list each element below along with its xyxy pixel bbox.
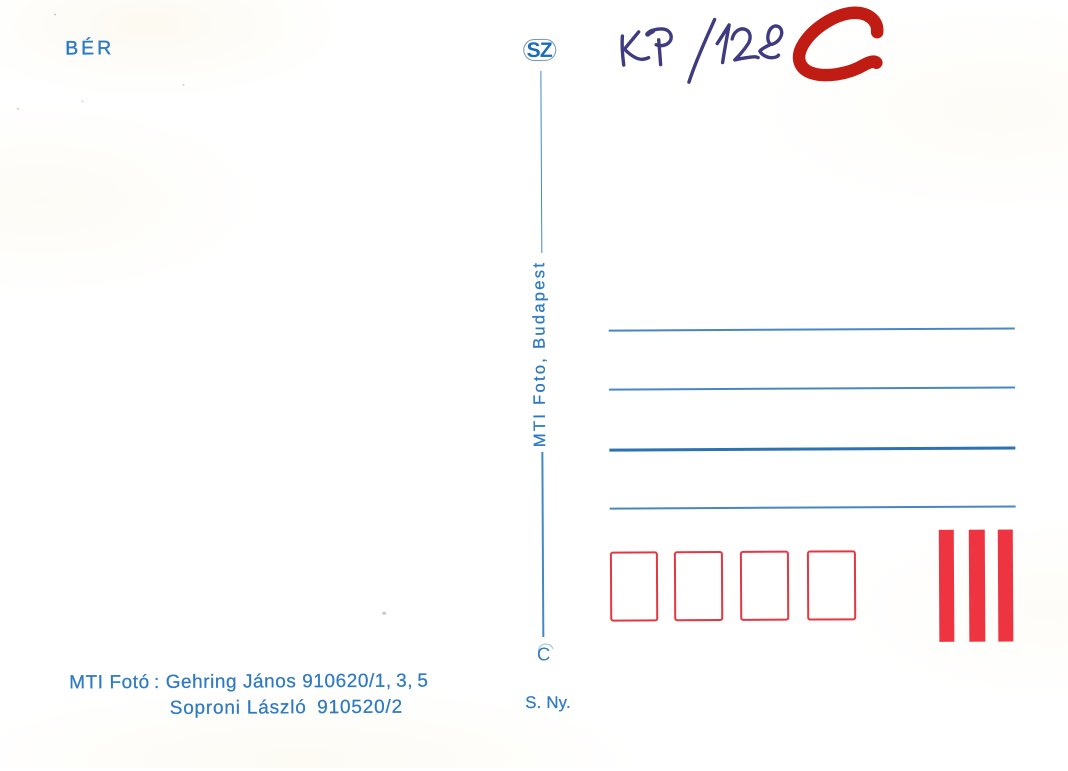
svg-text:C: C [537,643,550,664]
